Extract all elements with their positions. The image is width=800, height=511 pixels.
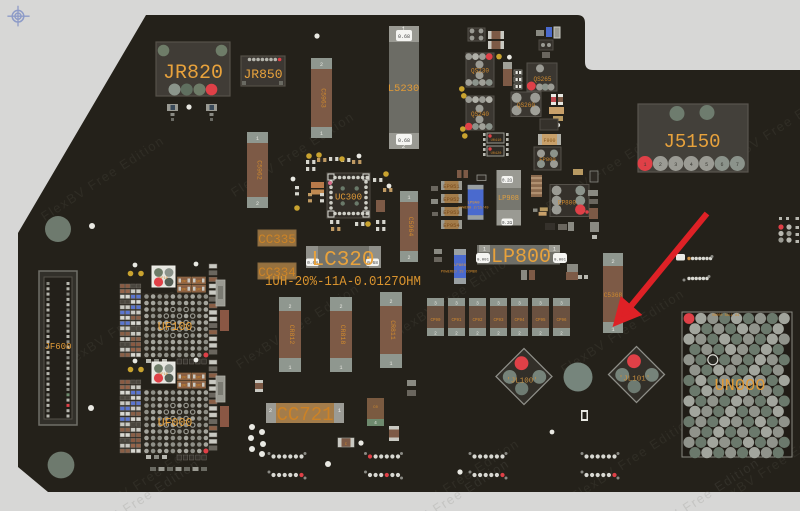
svg-text:UN000: UN000 <box>714 377 765 396</box>
svg-text:2: 2 <box>339 304 342 310</box>
svg-text:3: 3 <box>455 301 458 307</box>
svg-text:JF600: JF600 <box>44 342 71 352</box>
svg-text:QS240: QS240 <box>471 111 489 118</box>
svg-text:2: 2 <box>539 331 542 337</box>
svg-text:JR850: JR850 <box>243 67 282 82</box>
svg-text:1: 1 <box>320 131 323 137</box>
svg-text:CP96: CP96 <box>556 319 567 323</box>
svg-text:CP94: CP94 <box>514 319 525 323</box>
svg-text:0.001: 0.001 <box>554 259 567 263</box>
svg-text:3: 3 <box>674 162 677 168</box>
svg-text:4: 4 <box>374 420 377 426</box>
svg-text:SMC: SMC <box>181 288 187 292</box>
svg-text:UF10: UF10 <box>159 373 167 377</box>
svg-text:LP908: LP908 <box>454 264 467 268</box>
svg-text:UN000 BALL A1: UN000 BALL A1 <box>712 314 739 318</box>
svg-text:C5964: C5964 <box>407 217 414 237</box>
svg-text:LC320: LC320 <box>311 249 374 272</box>
svg-text:QS265: QS265 <box>533 76 551 83</box>
svg-text:UF100: UF100 <box>158 321 193 334</box>
svg-text:F900: F900 <box>543 138 555 144</box>
svg-text:QS260: QS260 <box>517 102 535 109</box>
svg-text:1: 1 <box>407 195 410 201</box>
svg-text:2: 2 <box>518 331 521 337</box>
svg-text:UF10: UF10 <box>159 277 167 281</box>
svg-text:SMC: SMC <box>196 384 202 388</box>
svg-text:L5230: L5230 <box>388 83 420 95</box>
svg-text:2: 2 <box>455 331 458 337</box>
svg-text:CR812: CR812 <box>288 325 295 345</box>
svg-text:0.68: 0.68 <box>398 138 410 144</box>
svg-text:2: 2 <box>320 62 323 68</box>
svg-text:QS230: QS230 <box>471 68 489 75</box>
svg-text:LP908: LP908 <box>498 195 519 203</box>
svg-text:CP95: CP95 <box>535 319 546 323</box>
svg-text:0.68: 0.68 <box>398 34 410 40</box>
svg-text:1: 1 <box>389 361 392 367</box>
svg-text:FP800: FP800 <box>539 156 556 163</box>
svg-text:EP800: EP800 <box>558 200 576 207</box>
svg-text:2: 2 <box>611 258 614 265</box>
svg-text:2: 2 <box>389 299 392 305</box>
svg-text:6: 6 <box>720 162 723 168</box>
svg-text:'JL100': 'JL100' <box>506 378 538 386</box>
svg-text:1: 1 <box>256 136 259 142</box>
svg-text:LP800: LP800 <box>491 246 551 269</box>
svg-text:'JL101': 'JL101' <box>619 376 651 384</box>
svg-text:EP951: EP951 <box>443 183 460 190</box>
svg-text:EP954: EP954 <box>443 222 460 229</box>
svg-text:CP92: CP92 <box>472 319 483 323</box>
svg-text:3: 3 <box>434 301 437 307</box>
svg-text:CR818: CR818 <box>339 325 346 345</box>
svg-text:C0: C0 <box>373 406 378 410</box>
svg-text:2: 2 <box>560 331 563 337</box>
svg-text:POWERED IS COMBO: POWERED IS COMBO <box>441 271 478 275</box>
svg-text:4: 4 <box>690 162 693 168</box>
svg-text:CR811: CR811 <box>389 320 396 340</box>
svg-text:JR820: JR820 <box>163 62 223 85</box>
svg-text:2: 2 <box>434 331 437 337</box>
svg-text:3: 3 <box>539 301 542 307</box>
svg-text:UF000: UF000 <box>158 417 193 430</box>
svg-text:EP952: EP952 <box>443 196 460 203</box>
svg-text:1UH-20%-11A-0.0127OHM: 1UH-20%-11A-0.0127OHM <box>265 275 421 290</box>
svg-text:CC335: CC335 <box>258 233 296 247</box>
svg-text:U0420: U0420 <box>491 152 502 156</box>
svg-text:SMC: SMC <box>196 280 202 284</box>
svg-text:CC721: CC721 <box>276 404 333 426</box>
svg-text:3: 3 <box>518 301 521 307</box>
svg-text:C5368: C5368 <box>604 292 623 299</box>
svg-text:U0410: U0410 <box>491 139 502 143</box>
svg-text:7: 7 <box>736 162 739 168</box>
svg-text:POWER0 2/15/49: POWER0 2/15/49 <box>458 206 488 211</box>
svg-text:CP90: CP90 <box>430 319 441 323</box>
svg-text:3: 3 <box>476 301 479 307</box>
svg-text:C5962: C5962 <box>256 160 263 180</box>
svg-text:CP91: CP91 <box>451 319 462 323</box>
svg-text:EP953: EP953 <box>443 209 460 216</box>
svg-text:0.2Ω: 0.2Ω <box>502 222 513 226</box>
svg-text:0.001: 0.001 <box>477 259 490 263</box>
svg-text:SMC: SMC <box>196 376 202 380</box>
svg-text:LP9A0: LP9A0 <box>467 202 480 206</box>
svg-text:2: 2 <box>288 304 291 310</box>
svg-text:CP93: CP93 <box>493 319 504 323</box>
svg-text:0.2Ω: 0.2Ω <box>502 180 513 184</box>
svg-text:SMC: SMC <box>181 384 187 388</box>
svg-text:1: 1 <box>288 365 291 371</box>
svg-text:J5150: J5150 <box>663 131 720 153</box>
svg-text:C5963: C5963 <box>320 88 327 108</box>
svg-text:2: 2 <box>269 407 272 414</box>
svg-text:5: 5 <box>705 162 708 168</box>
svg-text:SMC: SMC <box>181 376 187 380</box>
svg-text:3: 3 <box>497 301 500 307</box>
svg-text:1: 1 <box>643 162 646 168</box>
svg-text:2: 2 <box>407 255 410 261</box>
svg-text:3: 3 <box>560 301 563 307</box>
svg-text:SMC: SMC <box>196 288 202 292</box>
svg-text:1: 1 <box>553 247 556 253</box>
svg-text:2: 2 <box>497 331 500 337</box>
svg-text:UC300: UC300 <box>335 193 362 203</box>
svg-text:2: 2 <box>476 331 479 337</box>
svg-text:2: 2 <box>659 162 662 168</box>
svg-text:1: 1 <box>483 247 486 253</box>
svg-text:1: 1 <box>339 365 342 371</box>
svg-text:SMC: SMC <box>181 280 187 284</box>
svg-text:2: 2 <box>256 201 259 207</box>
